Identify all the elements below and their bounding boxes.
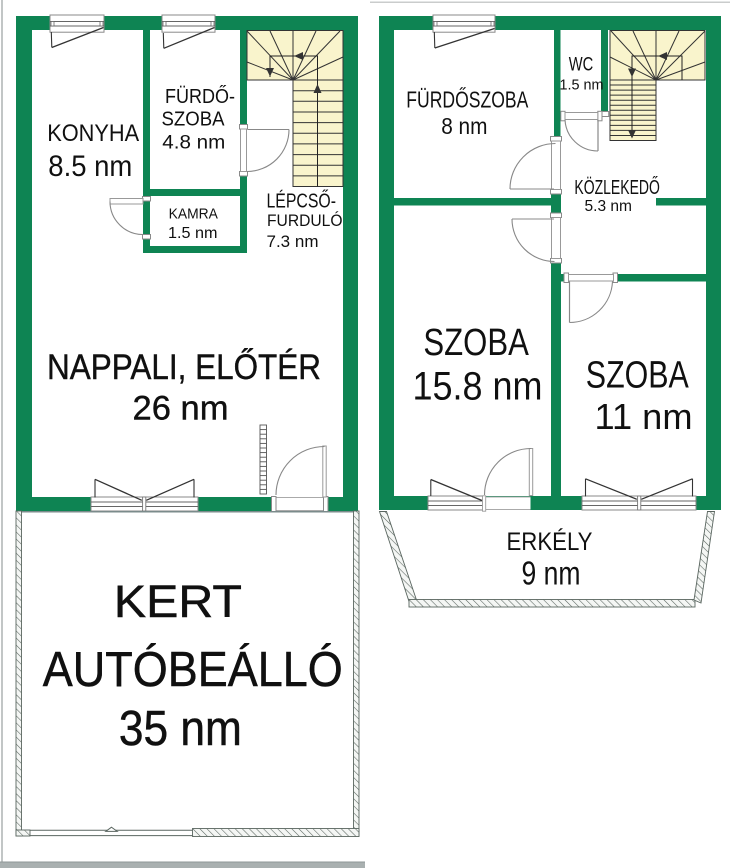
svg-text:15.8 nm: 15.8 nm: [413, 365, 543, 409]
svg-text:LÉPCSŐ-: LÉPCSŐ-: [267, 190, 337, 213]
svg-text:KONYHA: KONYHA: [47, 120, 139, 147]
svg-text:7.3 nm: 7.3 nm: [267, 232, 319, 251]
svg-text:SZOBA: SZOBA: [423, 322, 529, 364]
svg-text:WC: WC: [569, 55, 594, 76]
svg-text:26 nm: 26 nm: [133, 390, 229, 428]
svg-text:FÜRDŐ-: FÜRDŐ-: [165, 85, 235, 108]
svg-text:ERKÉLY: ERKÉLY: [507, 527, 593, 556]
svg-text:AUTÓBEÁLLÓ: AUTÓBEÁLLÓ: [43, 643, 343, 697]
svg-text:35 nm: 35 nm: [119, 702, 242, 756]
svg-text:NAPPALI, ELŐTÉR: NAPPALI, ELŐTÉR: [47, 348, 321, 387]
svg-text:4.8 nm: 4.8 nm: [162, 133, 225, 154]
svg-text:9 nm: 9 nm: [522, 555, 581, 592]
svg-text:8 nm: 8 nm: [441, 113, 487, 139]
svg-text:SZOBA: SZOBA: [162, 109, 226, 131]
svg-text:KÖZLEKEDŐ: KÖZLEKEDŐ: [574, 176, 660, 199]
svg-text:5.3 nm: 5.3 nm: [585, 198, 633, 215]
svg-text:KAMRA: KAMRA: [169, 206, 218, 223]
svg-text:1.5 nm: 1.5 nm: [560, 76, 604, 93]
svg-text:1.5 nm: 1.5 nm: [168, 225, 218, 242]
svg-text:11 nm: 11 nm: [595, 396, 693, 437]
svg-text:FÜRDŐSZOBA: FÜRDŐSZOBA: [406, 87, 529, 113]
svg-text:KERT: KERT: [114, 576, 242, 627]
svg-text:SZOBA: SZOBA: [586, 355, 690, 397]
svg-text:8.5 nm: 8.5 nm: [48, 150, 132, 183]
svg-text:FURDULÓ: FURDULÓ: [267, 211, 343, 230]
